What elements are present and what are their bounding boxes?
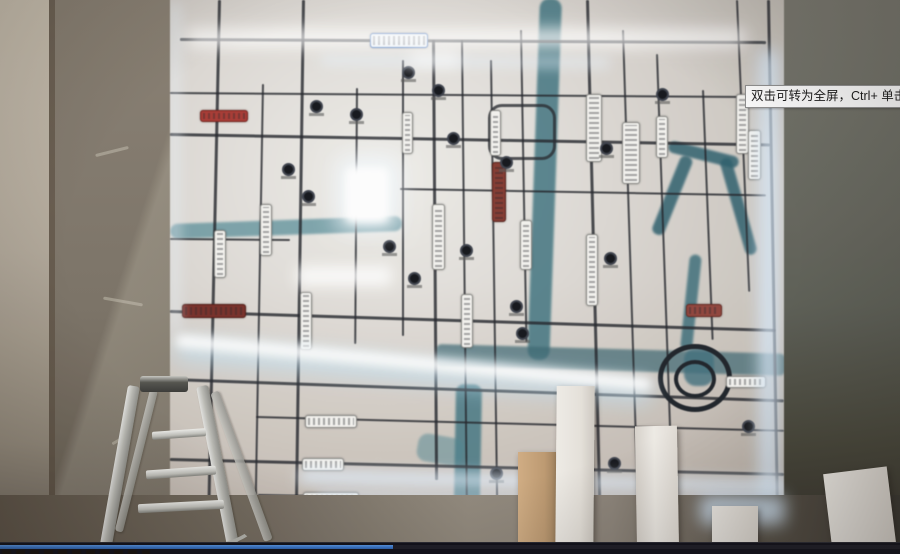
wall-left-strip	[0, 0, 55, 554]
seek-progress-played	[0, 545, 393, 549]
poi-marker	[282, 163, 295, 176]
interchange-ring-inner	[674, 360, 716, 398]
led-glow-strip	[760, 50, 778, 502]
poi-marker	[510, 300, 523, 313]
video-photo-content	[0, 0, 900, 554]
poi-marker	[460, 244, 473, 257]
road-label-plaque	[656, 116, 668, 158]
foam-pillar	[518, 452, 556, 552]
watermark-text-cutoff	[2, 550, 150, 554]
led-glow-strip	[346, 168, 388, 222]
road-label-plaque	[490, 110, 501, 156]
road-label-plaque	[302, 458, 344, 471]
road-label-plaque	[586, 94, 602, 162]
road-label-plaque	[182, 304, 246, 318]
poi-marker	[402, 66, 415, 79]
foam-pillar	[635, 426, 679, 554]
road-label-plaque	[300, 292, 312, 350]
road-label-plaque	[520, 220, 532, 270]
poi-marker	[350, 108, 363, 121]
led-glow-strip	[296, 266, 392, 286]
road-label-plaque	[260, 204, 272, 256]
road-label-plaque	[402, 112, 413, 154]
road-label-plaque	[586, 234, 598, 306]
fullscreen-tooltip: 双击可转为全屏，Ctrl+ 单击可转为	[745, 85, 900, 108]
poi-marker	[516, 327, 529, 340]
ladder-top-cap	[140, 376, 188, 392]
road-label-plaque	[622, 122, 640, 184]
road-label-plaque	[305, 415, 357, 428]
foam-pillar	[555, 386, 594, 554]
road-line-vertical	[402, 60, 404, 336]
poi-marker	[742, 420, 755, 433]
road-label-plaque	[432, 204, 445, 270]
poi-marker	[310, 100, 323, 113]
poi-marker	[302, 190, 315, 203]
poi-marker	[608, 457, 621, 470]
player-seek-bar[interactable]	[0, 542, 900, 554]
road-label-plaque	[200, 110, 248, 122]
road-label-plaque	[461, 294, 473, 348]
road-label-plaque	[214, 230, 226, 278]
led-glow-strip	[170, 2, 180, 332]
poi-marker	[408, 272, 421, 285]
poi-marker	[600, 142, 613, 155]
wall-scratch	[95, 146, 129, 157]
map-board	[170, 0, 784, 514]
led-glow-strip	[410, 50, 460, 68]
poi-marker	[383, 240, 396, 253]
video-player-frame[interactable]: 双击可转为全屏，Ctrl+ 单击可转为	[0, 0, 900, 554]
poi-marker	[500, 156, 513, 169]
road-label-plaque	[686, 304, 722, 317]
led-glow-strip	[186, 30, 746, 46]
poi-marker	[432, 84, 445, 97]
poi-marker	[656, 88, 669, 101]
foam-pillar	[823, 466, 897, 554]
wall-scratch	[103, 297, 143, 307]
poi-marker	[604, 252, 617, 265]
poi-marker	[447, 132, 460, 145]
